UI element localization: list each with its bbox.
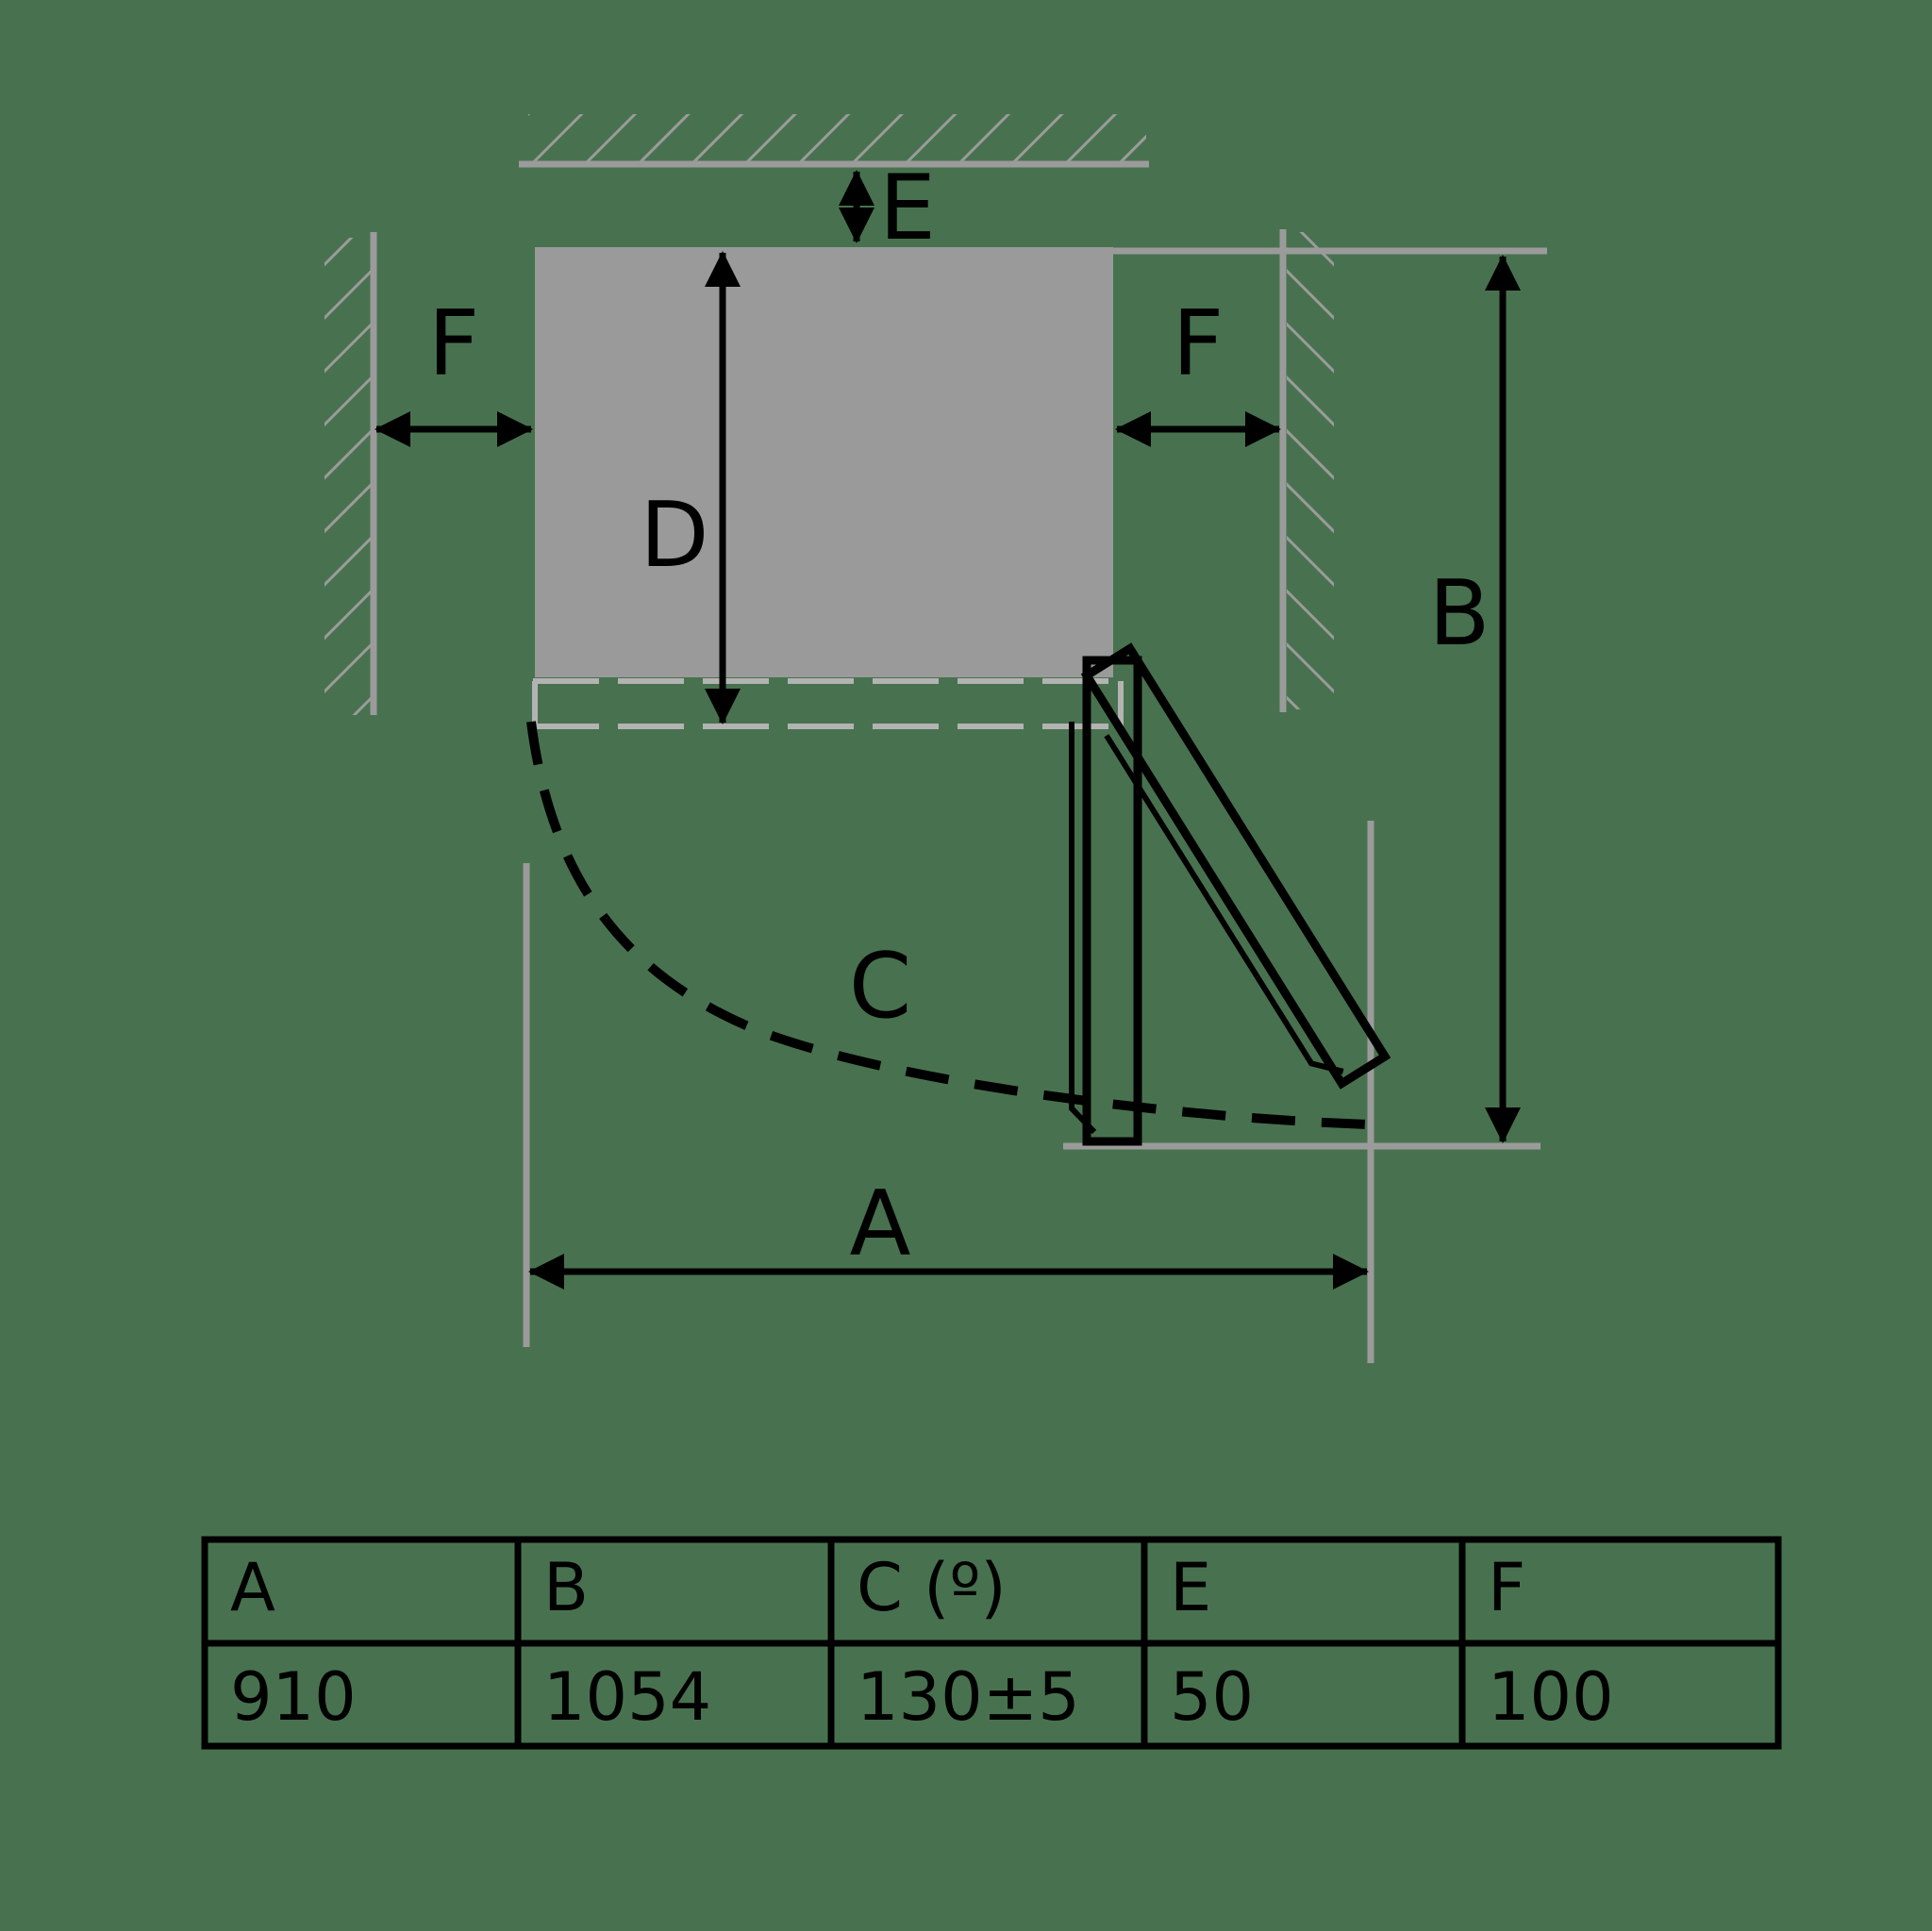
installation-clearance-diagram: E F F D B C A A B C (º) E F 910 1054 130… <box>0 0 1932 1931</box>
table-header-e: E <box>1170 1549 1211 1626</box>
table-header-f: F <box>1488 1549 1525 1626</box>
table-value-a: 910 <box>230 1658 357 1736</box>
dimension-label-f-right: F <box>1173 292 1224 396</box>
dimension-label-e: E <box>879 157 936 260</box>
left-wall-hatching <box>325 238 371 715</box>
table-value-f: 100 <box>1488 1658 1614 1736</box>
left-wall <box>325 232 374 715</box>
right-wall-hatching <box>1287 232 1334 709</box>
table-header-a: A <box>230 1549 275 1626</box>
table-value-c: 130±5 <box>857 1658 1080 1736</box>
table-value-e: 50 <box>1170 1658 1254 1736</box>
dimension-label-d: D <box>640 484 708 588</box>
table-value-b: 1054 <box>543 1658 711 1736</box>
appliance-cabinet <box>535 247 1113 677</box>
dimension-label-f-left: F <box>428 292 480 396</box>
diagram-canvas: E F F D B C A A B C (º) E F 910 1054 130… <box>0 0 1932 1931</box>
dimension-label-a: A <box>850 1173 911 1276</box>
table-header-c: C (º) <box>857 1549 1007 1626</box>
table-header-b: B <box>543 1549 589 1626</box>
dimension-label-c: C <box>849 935 911 1039</box>
dimension-label-b: B <box>1428 562 1490 666</box>
rear-wall-hatching <box>528 114 1146 162</box>
rear-wall <box>519 114 1149 164</box>
right-wall <box>1283 229 1334 712</box>
